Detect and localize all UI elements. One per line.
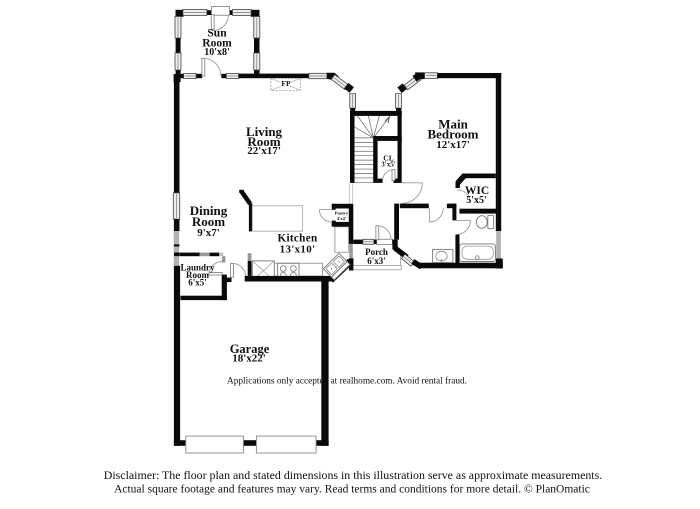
svg-text:9'x7': 9'x7' <box>197 227 220 239</box>
svg-text:10'x8': 10'x8' <box>204 47 230 58</box>
svg-text:6'x3': 6'x3' <box>367 256 386 266</box>
svg-text:5'x5': 5'x5' <box>466 195 487 206</box>
svg-text:6'x5': 6'x5' <box>188 278 207 288</box>
svg-text:18'x22': 18'x22' <box>232 353 266 365</box>
svg-text:FP: FP <box>281 79 291 88</box>
svg-text:4'x4': 4'x4' <box>337 216 346 221</box>
svg-text:3'x5': 3'x5' <box>381 161 395 169</box>
svg-text:Applications only accepted at: Applications only accepted at realhome.c… <box>227 375 467 386</box>
svg-text:Pantry: Pantry <box>335 210 349 215</box>
svg-text:Disclaimer: The floor plan and: Disclaimer: The floor plan and stated di… <box>104 468 602 482</box>
svg-text:Actual square footage and feat: Actual square footage and features may v… <box>114 483 590 495</box>
svg-text:12'x17': 12'x17' <box>436 139 470 151</box>
svg-text:13'x10': 13'x10' <box>280 244 316 256</box>
svg-text:22'x17': 22'x17' <box>247 145 281 157</box>
